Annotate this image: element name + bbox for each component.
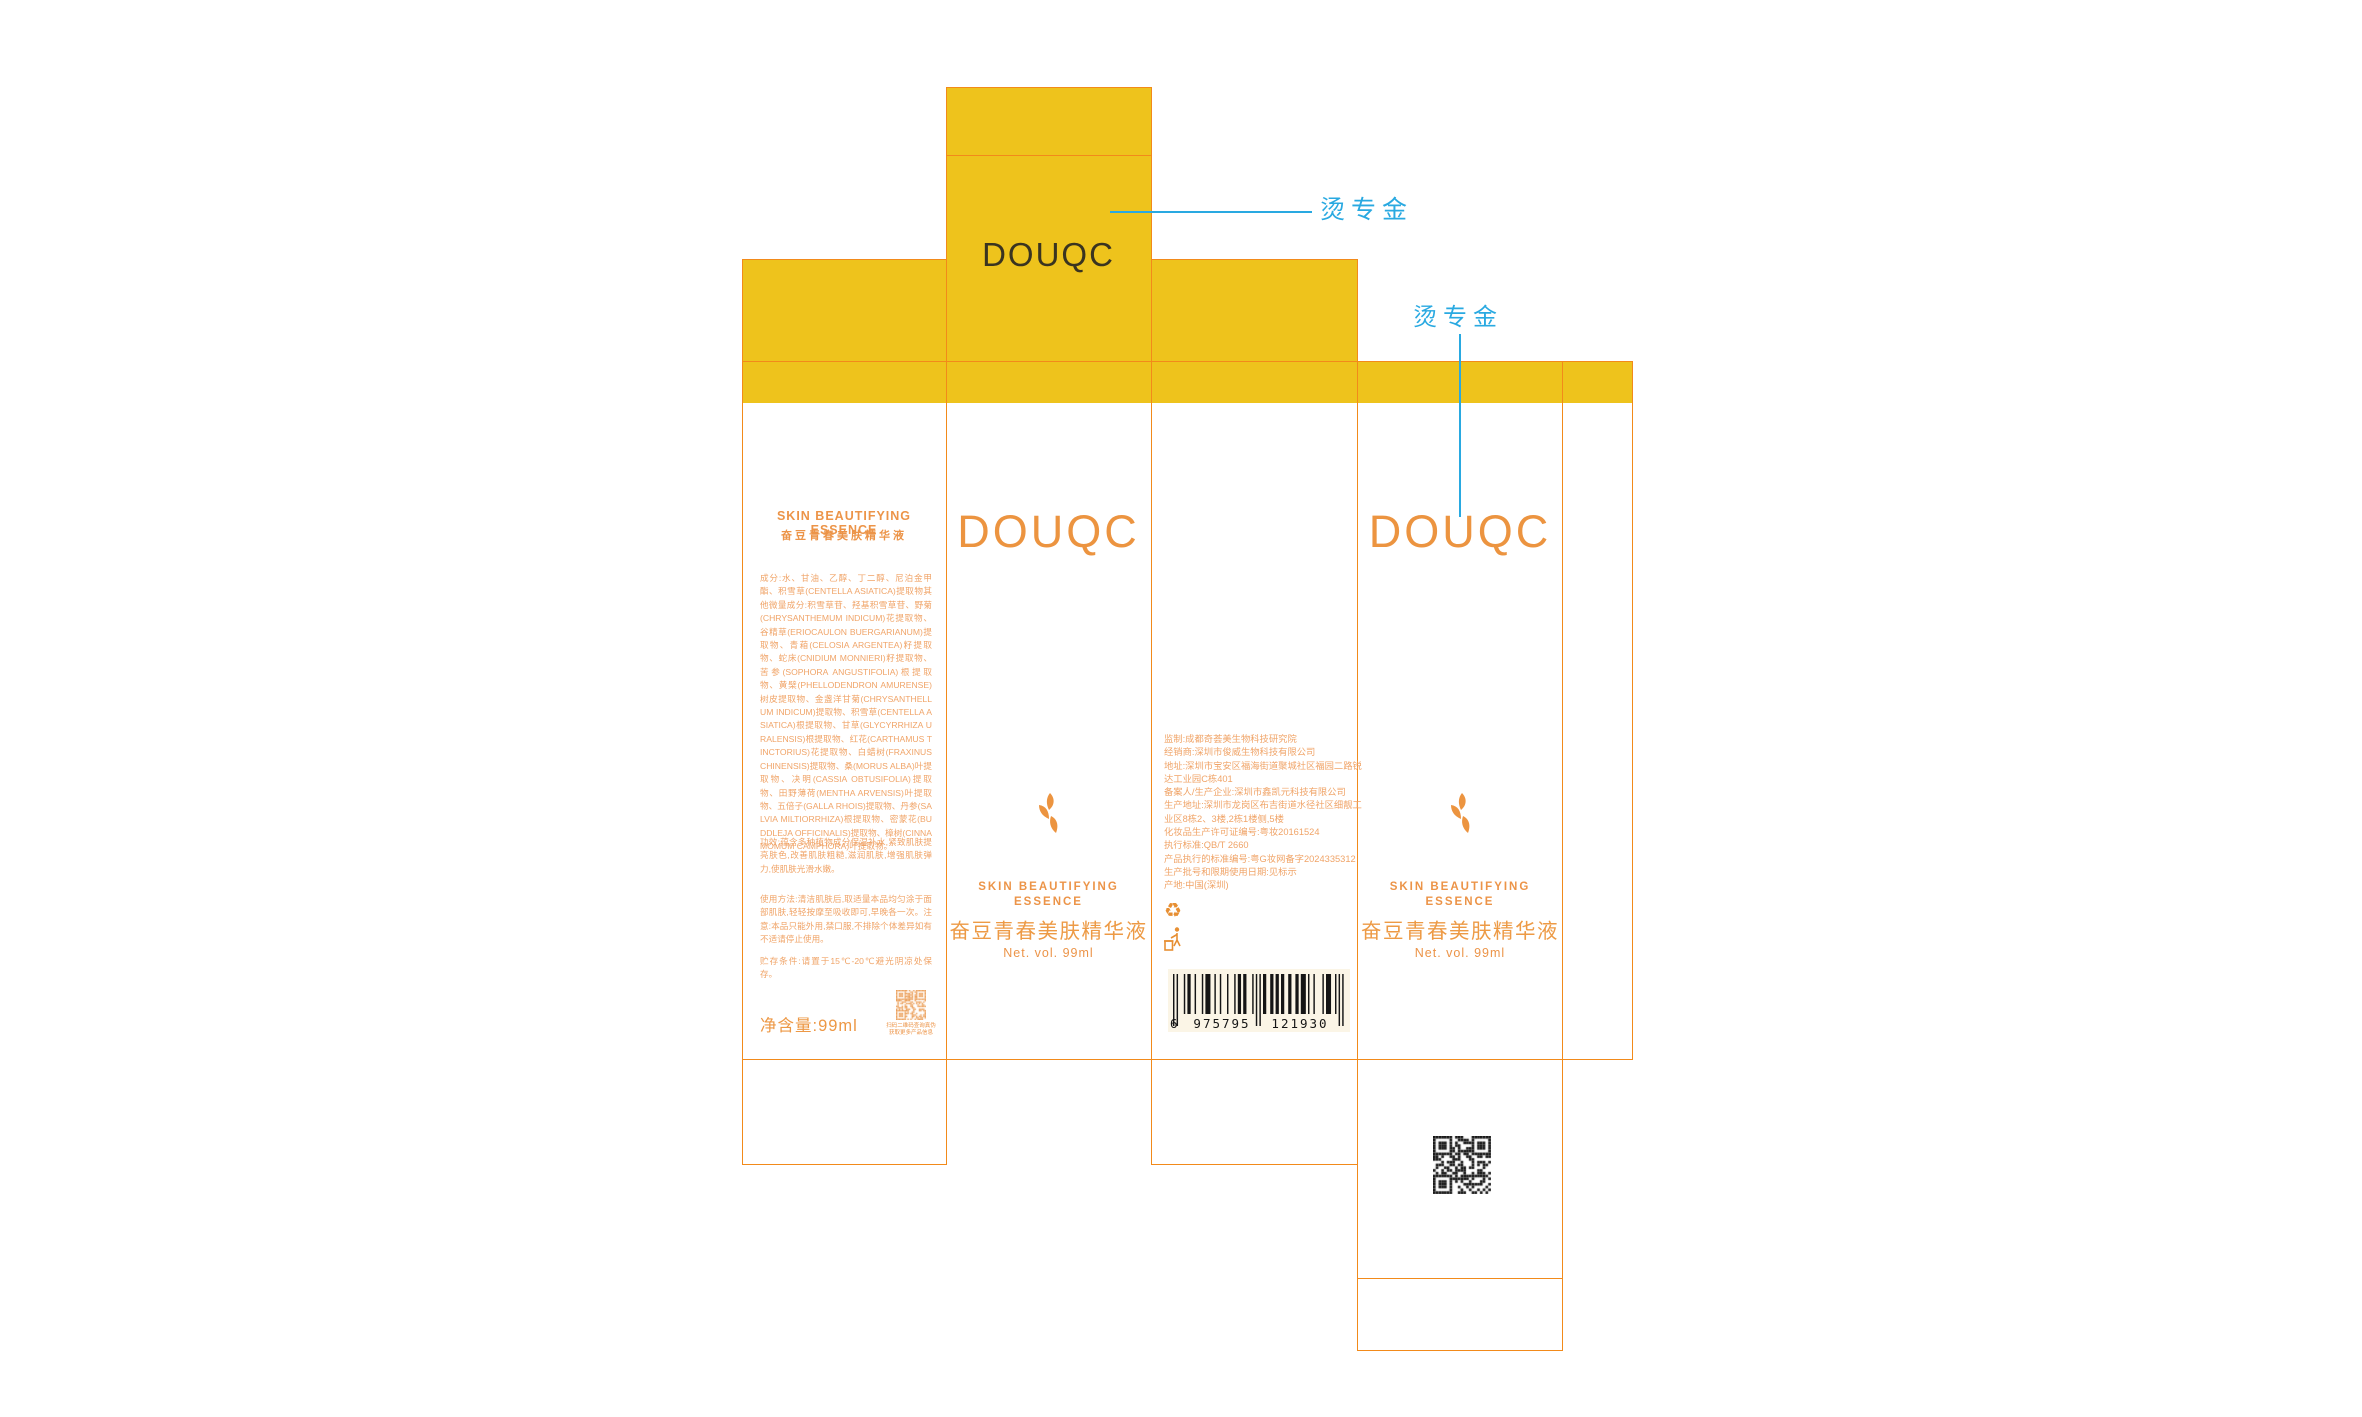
- front-net-vol: Net. vol. 99ml: [946, 946, 1151, 960]
- foil-stamp-note-1: 烫专金: [1320, 190, 1413, 226]
- net-content-label: 净含量:99ml: [760, 1012, 858, 1036]
- barcode-digits-right: 121930: [1264, 1016, 1336, 1031]
- dieline-left-shoulder-flap: [742, 259, 947, 362]
- info-line: 达工业园C栋401: [1164, 773, 1356, 786]
- dieline-tall-flap-foldline: [946, 155, 1152, 156]
- recycle-icon: ♻: [1164, 901, 1182, 921]
- info-line: 地址:深圳市宝安区福海街道聚城社区福园二路锐: [1164, 760, 1356, 773]
- leaf-icon: [1031, 792, 1065, 842]
- dieline-top-tall-flap: [946, 87, 1152, 362]
- usage-text: 使用方法:清洁肌肤后,取适量本品均匀涂于面部肌肤,轻轻按摩至吸收即可,早晚各一次…: [760, 893, 932, 947]
- leaf-icon: [1443, 792, 1477, 842]
- info-line: 化妆品生产许可证编号:粤妆20161524: [1164, 826, 1356, 839]
- info-line: 生产地址:深圳市龙岗区布吉街道水径社区细靓工: [1164, 799, 1356, 812]
- dieline-bottom-flap-back: [742, 1059, 947, 1165]
- info-line: 产品执行的标准编号:粤G妆网备字2024335312: [1164, 853, 1356, 866]
- qr-code-small: [896, 990, 926, 1020]
- annotation-leader-line-2: [1459, 334, 1461, 517]
- info-line: 监制:成都奇荟美生物科技研究院: [1164, 733, 1356, 746]
- tidyman-icon: [1164, 926, 1182, 954]
- barcode-digits-left: 975795: [1186, 1016, 1258, 1031]
- efficacy-text: 功效:蕴含多种植物成分保湿补水,紧致肌肤提亮肤色,改善肌肤粗糙,滋润肌肤,增强肌…: [760, 836, 932, 876]
- front-tagline-2: ESSENCE: [946, 896, 1151, 908]
- right-front-tagline-1: SKIN BEAUTIFYING: [1357, 881, 1563, 893]
- ingredients-text: 成分:水、甘油、乙醇、丁二醇、尼泊金甲酯、积雪草(CENTELLA ASIATI…: [760, 572, 932, 854]
- back-title-cn: 奋豆青春美肤精华液: [742, 527, 946, 543]
- info-line: 业区8栋2、3楼,2栋1楼侧,5楼: [1164, 813, 1356, 826]
- packaging-dieline-sheet: DOUQC SKIN BEAUTIFYING ESSENCE 奋豆青春美肤精华液…: [0, 0, 2362, 1417]
- qr-caption-line2: 获取更多产品信息: [882, 1030, 940, 1037]
- manufacturer-info-block: 监制:成都奇荟美生物科技研究院 经销商:深圳市俊威生物科技有限公司 地址:深圳市…: [1164, 733, 1356, 893]
- front-tagline-1: SKIN BEAUTIFYING: [946, 881, 1151, 893]
- annotation-leader-line-1: [1110, 211, 1312, 213]
- info-line: 执行标准:QB/T 2660: [1164, 839, 1356, 852]
- front-product-name: 奋豆青春美肤精华液: [946, 914, 1151, 944]
- barcode-digit-first: 6: [1170, 1016, 1180, 1031]
- right-front-tagline-2: ESSENCE: [1357, 896, 1563, 908]
- qr-code-large: [1433, 1136, 1491, 1194]
- storage-text: 贮存条件:请置于15℃-20℃避光阴凉处保存。: [760, 955, 932, 982]
- dieline-panel-divider-2: [1151, 361, 1152, 1059]
- right-front-net-vol: Net. vol. 99ml: [1357, 946, 1563, 960]
- info-line: 经销商:深圳市俊威生物科技有限公司: [1164, 746, 1356, 759]
- dieline-right-shoulder-flap: [1151, 259, 1358, 362]
- dieline-bottom-tuck-flap: [1357, 1278, 1563, 1351]
- info-line: 生产批号和限期使用日期:见标示: [1164, 866, 1356, 879]
- foil-stamp-note-2: 烫专金: [1413, 297, 1503, 332]
- info-line: 备案人/生产企业:深圳市鑫凯元科技有限公司: [1164, 786, 1356, 799]
- qr-caption-line1: 扫码二维码查询真伪: [882, 1023, 940, 1030]
- front-logo: DOUQC: [946, 506, 1151, 558]
- dieline-bottom-flap-side: [1151, 1059, 1358, 1165]
- info-line: 产地:中国(深圳): [1164, 879, 1356, 892]
- right-front-product-name: 奋豆青春美肤精华液: [1357, 914, 1563, 944]
